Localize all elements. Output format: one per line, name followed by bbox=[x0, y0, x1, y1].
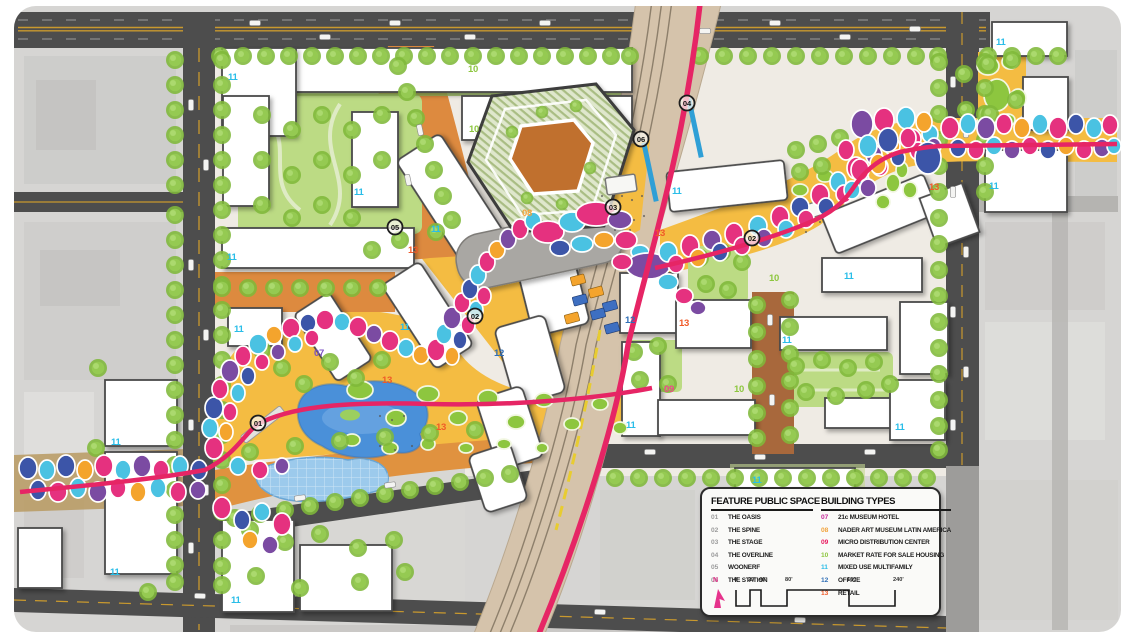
building-label: 10 bbox=[469, 124, 479, 135]
legend-item-oasis: 01THE OASIS bbox=[711, 514, 813, 527]
building-label: 13 bbox=[408, 245, 418, 256]
svg-text:05: 05 bbox=[391, 223, 399, 232]
building-label: 11 bbox=[672, 186, 682, 197]
building-label: 11 bbox=[400, 322, 410, 333]
scale-tick: 240' bbox=[893, 577, 904, 583]
svg-text:04: 04 bbox=[683, 99, 692, 108]
building-label: 11 bbox=[354, 187, 364, 198]
svg-text:02: 02 bbox=[748, 234, 756, 243]
marker-02b: 02 bbox=[745, 231, 760, 246]
stage-structure bbox=[605, 174, 637, 195]
building-label: 11 bbox=[111, 437, 121, 448]
building-label: 07 bbox=[314, 348, 324, 359]
building bbox=[222, 228, 414, 268]
building-label: 12 bbox=[494, 348, 504, 359]
building-label: 13 bbox=[679, 318, 689, 329]
building-label: 09 bbox=[664, 384, 674, 395]
building-label: 13 bbox=[655, 228, 665, 239]
legend-item-hotel: 0721c MUSEUM HOTEL bbox=[821, 514, 951, 527]
building-label: 13 bbox=[929, 182, 939, 193]
svg-text:03: 03 bbox=[609, 203, 617, 212]
north-label: N bbox=[713, 577, 718, 584]
svg-text:02: 02 bbox=[471, 312, 479, 321]
scale-bar: N 0' 20' 40' 80' 160' 240' bbox=[710, 576, 931, 612]
building-label: 11 bbox=[996, 37, 1006, 48]
legend-title-building-types: BUILDING TYPES bbox=[821, 496, 951, 511]
building-label: 11 bbox=[844, 271, 854, 282]
scale-bar-graphic bbox=[730, 584, 902, 610]
north-arrow-icon bbox=[710, 586, 726, 610]
building bbox=[658, 400, 755, 435]
building-label: 11 bbox=[895, 422, 905, 433]
scale-tick: 0' bbox=[734, 577, 738, 583]
legend-item-museum: 08NADER ART MUSEUM LATIN AMERICA bbox=[821, 527, 951, 540]
building bbox=[900, 302, 948, 374]
scale-tick: 80' bbox=[785, 577, 793, 583]
marker-04: 04 bbox=[680, 96, 695, 111]
building-label: 11 bbox=[231, 595, 241, 606]
building-label: 11 bbox=[989, 181, 999, 192]
building-label: 13 bbox=[436, 422, 446, 433]
building-label: 08 bbox=[522, 208, 532, 219]
building-label: 11 bbox=[752, 475, 762, 486]
scale-tick: 160' bbox=[847, 577, 858, 583]
building-label: 11 bbox=[227, 252, 237, 263]
map-legend: FEATURE PUBLIC SPACE 01THE OASIS 02THE S… bbox=[700, 487, 941, 617]
building bbox=[18, 528, 62, 588]
building-label: 11 bbox=[234, 324, 244, 335]
marker-06: 06 bbox=[634, 132, 649, 147]
legend-item-spine: 02THE SPINE bbox=[711, 527, 813, 540]
legend-item-micro-distribution: 09MICRO DISTRIBUTION CENTER bbox=[821, 539, 951, 552]
building-label: 10 bbox=[468, 64, 478, 75]
building-label: 10 bbox=[734, 384, 744, 395]
building-label: 11 bbox=[228, 72, 238, 83]
building-label: 10 bbox=[769, 273, 779, 284]
svg-text:06: 06 bbox=[637, 135, 645, 144]
svg-text:01: 01 bbox=[254, 419, 262, 428]
building-label: 12 bbox=[625, 315, 635, 326]
building-label: 11 bbox=[782, 335, 792, 346]
building-label: 11 bbox=[110, 567, 120, 578]
top-street bbox=[14, 12, 990, 48]
building-label: 13 bbox=[382, 375, 392, 386]
marker-01: 01 bbox=[251, 416, 266, 431]
building-label: 11 bbox=[431, 224, 441, 235]
legend-title-feature-public-space: FEATURE PUBLIC SPACE bbox=[711, 496, 813, 511]
building bbox=[300, 545, 392, 611]
legend-item-overline: 04THE OVERLINE bbox=[711, 552, 813, 565]
legend-item-stage: 03THE STAGE bbox=[711, 539, 813, 552]
marker-05: 05 bbox=[388, 220, 403, 235]
masterplan-screenshot: 01 02 02 03 04 05 06 11 11 11 10 10 08 1… bbox=[0, 0, 1135, 638]
marker-03: 03 bbox=[606, 200, 621, 215]
marker-02: 02 bbox=[468, 309, 483, 324]
building-label: 11 bbox=[626, 420, 636, 431]
scale-tick: 40' bbox=[759, 577, 767, 583]
legend-item-for-sale-housing: 10MARKET RATE FOR SALE HOUSING bbox=[821, 552, 951, 565]
building bbox=[822, 258, 922, 292]
scale-tick: 20' bbox=[748, 577, 756, 583]
site-plan-map: 01 02 02 03 04 05 06 11 11 11 10 10 08 1… bbox=[0, 0, 1135, 638]
